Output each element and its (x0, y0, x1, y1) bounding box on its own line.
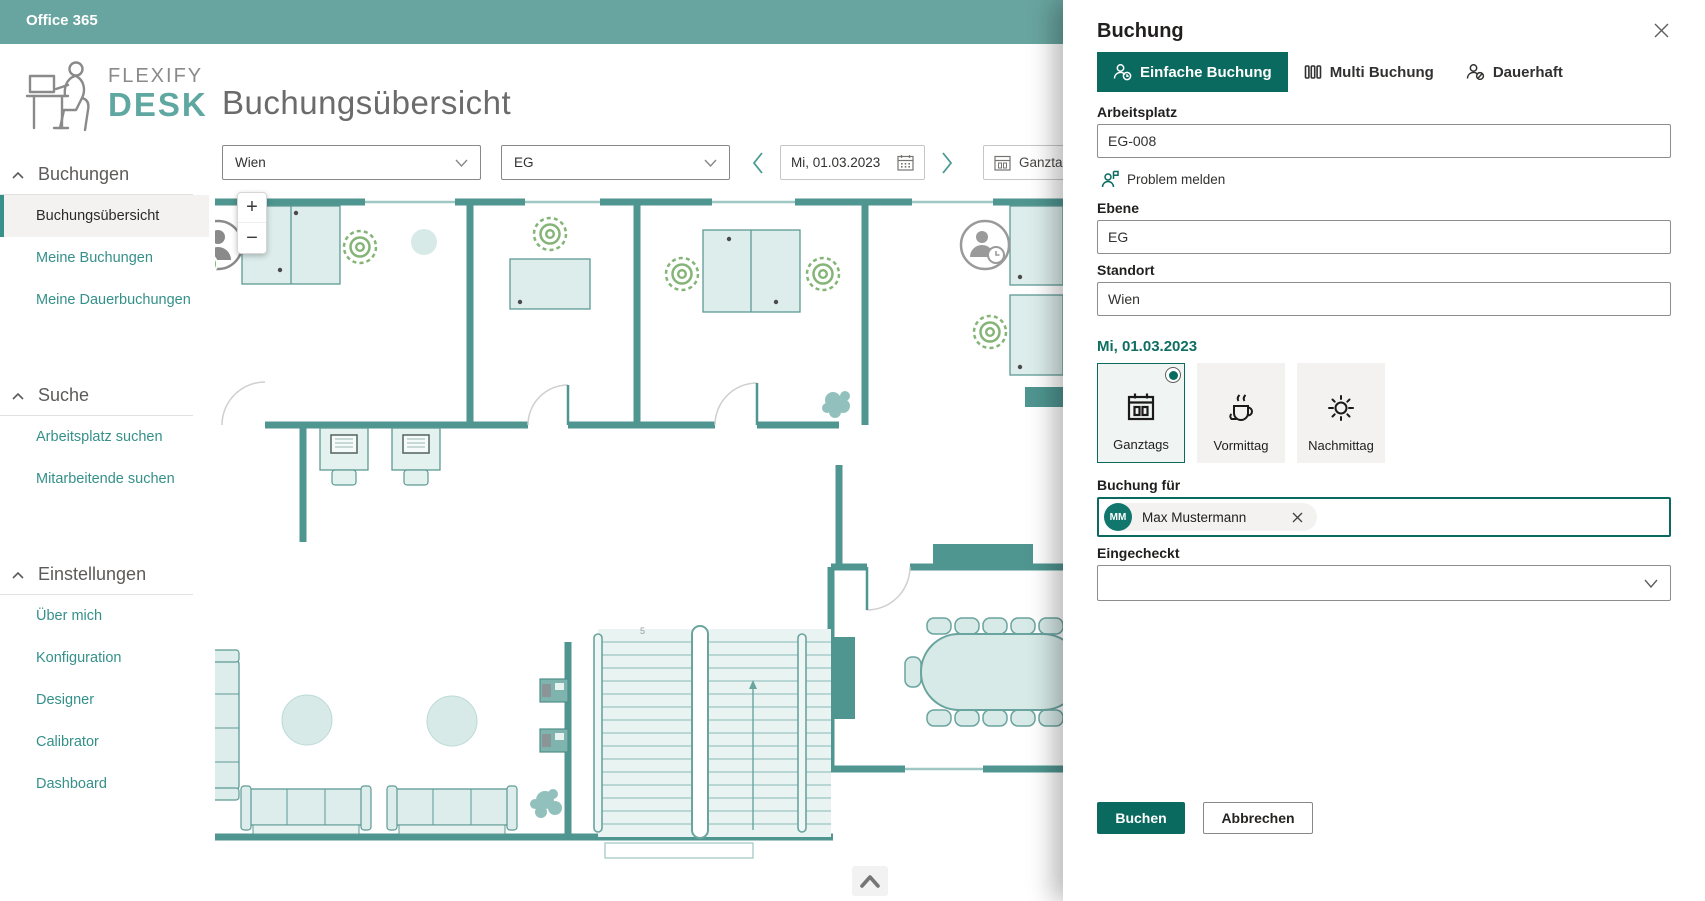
booking-type-tabs: Einfache Buchung Multi Buchung Dauerhaft (1097, 52, 1671, 92)
tab-label: Einfache Buchung (1140, 64, 1272, 81)
tab-einfache-buchung[interactable]: Einfache Buchung (1097, 52, 1288, 92)
sideboard (833, 637, 855, 719)
sidebar-item-ueber-mich[interactable]: Über mich (0, 595, 209, 637)
section-header-einstellungen[interactable]: Einstellungen (0, 556, 193, 595)
sidebar-item-arbeitsplatz-suchen[interactable]: Arbeitsplatz suchen (0, 416, 209, 458)
desk-group-room2[interactable] (510, 259, 590, 309)
sofa (241, 786, 371, 834)
printer (540, 679, 568, 702)
available-desk-indicator[interactable] (974, 316, 1006, 348)
person-name: Max Mustermann (1142, 510, 1246, 525)
app-window: Office 365 FLEXIFY DESK (0, 0, 1705, 901)
multi-bars-icon (1304, 63, 1322, 81)
logo-word-desk: DESK (108, 88, 208, 121)
panel-title: Buchung (1097, 20, 1184, 43)
booking-for-field[interactable]: MM Max Mustermann (1097, 497, 1671, 537)
remove-person-button[interactable] (1292, 512, 1303, 523)
problem-melden-label: Problem melden (1127, 172, 1225, 187)
available-desk-indicator[interactable] (807, 258, 839, 290)
date-picker[interactable]: Mi, 01.03.2023 (780, 145, 925, 180)
desk-group-room3[interactable] (703, 230, 800, 312)
sofa-vertical (215, 650, 239, 800)
person-chip[interactable]: MM Max Mustermann (1104, 503, 1317, 531)
section-label: Einstellungen (38, 564, 146, 585)
sidebar-item-konfiguration[interactable]: Konfiguration (0, 637, 209, 679)
ebene-label: Ebene (1097, 200, 1671, 216)
level-value: EG (514, 155, 534, 170)
sidebar-nav: Buchungen Buchungsübersicht Meine Buchun… (0, 156, 209, 805)
available-desk-indicator[interactable] (344, 231, 376, 263)
chevron-up-icon (859, 874, 881, 888)
desk-person-logo-icon (24, 58, 102, 134)
tab-label: Dauerhaft (1493, 64, 1563, 81)
slot-card-nachmittag[interactable]: Nachmittag (1297, 363, 1385, 463)
radio-selected-icon[interactable] (1165, 367, 1181, 383)
bottom-panel-expander[interactable] (852, 866, 888, 896)
sidebar-item-calibrator[interactable]: Calibrator (0, 721, 209, 763)
stair-label: 5 (640, 626, 645, 636)
slot-label: Ganztags (1113, 437, 1169, 452)
close-icon (1654, 23, 1669, 38)
coffee-cup-icon (1223, 390, 1259, 426)
timeslot-value: Ganzta (1019, 155, 1063, 170)
full-day-calendar-icon (1123, 389, 1159, 425)
logo-word-flexify: FLEXIFY (108, 66, 208, 86)
plant (822, 391, 850, 418)
booked-desk-indicator[interactable] (961, 221, 1009, 269)
desk-group-right[interactable] (1010, 206, 1063, 375)
cabinet (1025, 387, 1063, 407)
standort-label: Standort (1097, 262, 1671, 278)
previous-day-button[interactable] (750, 145, 766, 180)
slot-card-ganztags[interactable]: Ganztags (1097, 363, 1185, 463)
location-dropdown[interactable]: Wien (222, 145, 481, 180)
panel-actions: Buchen Abbrechen (1097, 802, 1313, 834)
zoom-in-button[interactable]: + (238, 193, 266, 223)
sidebar-item-dashboard[interactable]: Dashboard (0, 763, 209, 805)
booking-date-heading: Mi, 01.03.2023 (1097, 338, 1671, 355)
floor-plan-map[interactable]: 5 (215, 182, 1063, 882)
chevron-right-icon (941, 152, 953, 174)
eingecheckt-dropdown[interactable] (1097, 565, 1671, 601)
staircase: 5 (594, 626, 831, 858)
sidebar-section-einstellungen: Einstellungen Über mich Konfiguration De… (0, 556, 209, 805)
abbrechen-button[interactable]: Abbrechen (1203, 802, 1313, 834)
round-table (427, 696, 477, 746)
buchung-fuer-label: Buchung für (1097, 477, 1671, 493)
pc-desk[interactable] (320, 428, 368, 485)
person-recurring-icon (1466, 63, 1485, 81)
next-day-button[interactable] (939, 145, 955, 180)
tab-label: Multi Buchung (1330, 64, 1434, 81)
calendar-icon (994, 154, 1011, 171)
avatar: MM (1104, 503, 1132, 531)
person-flag-icon (1101, 170, 1119, 188)
person-clock-icon (1113, 63, 1132, 81)
office-365-bar: Office 365 (0, 0, 1063, 44)
stool (411, 229, 437, 255)
conference-table (921, 634, 1063, 710)
section-header-buchungen[interactable]: Buchungen (0, 156, 193, 195)
arbeitsplatz-label: Arbeitsplatz (1097, 104, 1671, 120)
plant (530, 789, 562, 818)
chevron-down-icon (704, 159, 717, 167)
pc-desk[interactable] (392, 428, 440, 485)
chevron-down-icon (455, 159, 468, 167)
available-desk-indicator[interactable] (534, 218, 566, 250)
chevron-down-icon (1644, 579, 1658, 588)
printer (540, 729, 568, 752)
chevron-left-icon (752, 152, 764, 174)
standort-field[interactable] (1097, 282, 1671, 316)
filter-toolbar: Wien EG Mi, 01.03.2023 Ganzta (222, 145, 1075, 180)
sidebar-item-designer[interactable]: Designer (0, 679, 209, 721)
buchen-button[interactable]: Buchen (1097, 802, 1185, 834)
calendar-icon (897, 154, 914, 171)
timeslot-filter[interactable]: Ganzta (983, 145, 1075, 180)
tab-multi-buchung[interactable]: Multi Buchung (1288, 52, 1450, 92)
counter (933, 544, 1033, 566)
chevron-up-icon (12, 171, 24, 179)
section-label: Suche (38, 385, 89, 406)
sofa (387, 786, 517, 834)
slot-label: Vormittag (1214, 438, 1269, 453)
location-value: Wien (235, 155, 266, 170)
close-panel-button[interactable] (1651, 20, 1671, 40)
sidebar-item-meine-dauerbuchungen[interactable]: Meine Dauerbuchungen (0, 279, 209, 321)
timeslot-cards: Ganztags Vormittag (1097, 363, 1671, 463)
problem-melden-link[interactable]: Problem melden (1101, 170, 1225, 188)
date-value: Mi, 01.03.2023 (791, 155, 880, 170)
level-dropdown[interactable]: EG (501, 145, 730, 180)
chevron-up-icon (12, 392, 24, 400)
booking-panel: Buchung Einfache Buchung Multi Buchung (1063, 0, 1705, 901)
sidebar-item-meine-buchungen[interactable]: Meine Buchungen (0, 237, 209, 279)
slot-label: Nachmittag (1308, 438, 1374, 453)
available-desk-indicator[interactable] (666, 258, 698, 290)
sidebar-section-buchungen: Buchungen Buchungsübersicht Meine Buchun… (0, 156, 209, 321)
page-title: Buchungsübersicht (222, 84, 511, 122)
slot-card-vormittag[interactable]: Vormittag (1197, 363, 1285, 463)
ebene-field[interactable] (1097, 220, 1671, 254)
sidebar: FLEXIFY DESK Buchungen Buchungsübersicht… (0, 44, 209, 901)
map-zoom-control: + − (237, 192, 267, 254)
close-icon (1292, 512, 1303, 523)
sidebar-item-mitarbeitende-suchen[interactable]: Mitarbeitende suchen (0, 458, 209, 500)
doors (222, 382, 910, 610)
chevron-up-icon (12, 571, 24, 579)
sidebar-item-buchungsuebersicht[interactable]: Buchungsübersicht (0, 195, 209, 237)
sun-icon (1323, 390, 1359, 426)
office-365-title: Office 365 (26, 12, 98, 29)
round-table (282, 695, 332, 745)
tab-dauerhaft[interactable]: Dauerhaft (1450, 52, 1579, 92)
zoom-out-button[interactable]: − (238, 223, 266, 253)
eingecheckt-label: Eingecheckt (1097, 545, 1671, 561)
sidebar-section-suche: Suche Arbeitsplatz suchen Mitarbeitende … (0, 377, 209, 500)
flexify-desk-logo: FLEXIFY DESK (24, 58, 209, 134)
section-header-suche[interactable]: Suche (0, 377, 193, 416)
section-label: Buchungen (38, 164, 129, 185)
arbeitsplatz-field[interactable] (1097, 124, 1671, 158)
